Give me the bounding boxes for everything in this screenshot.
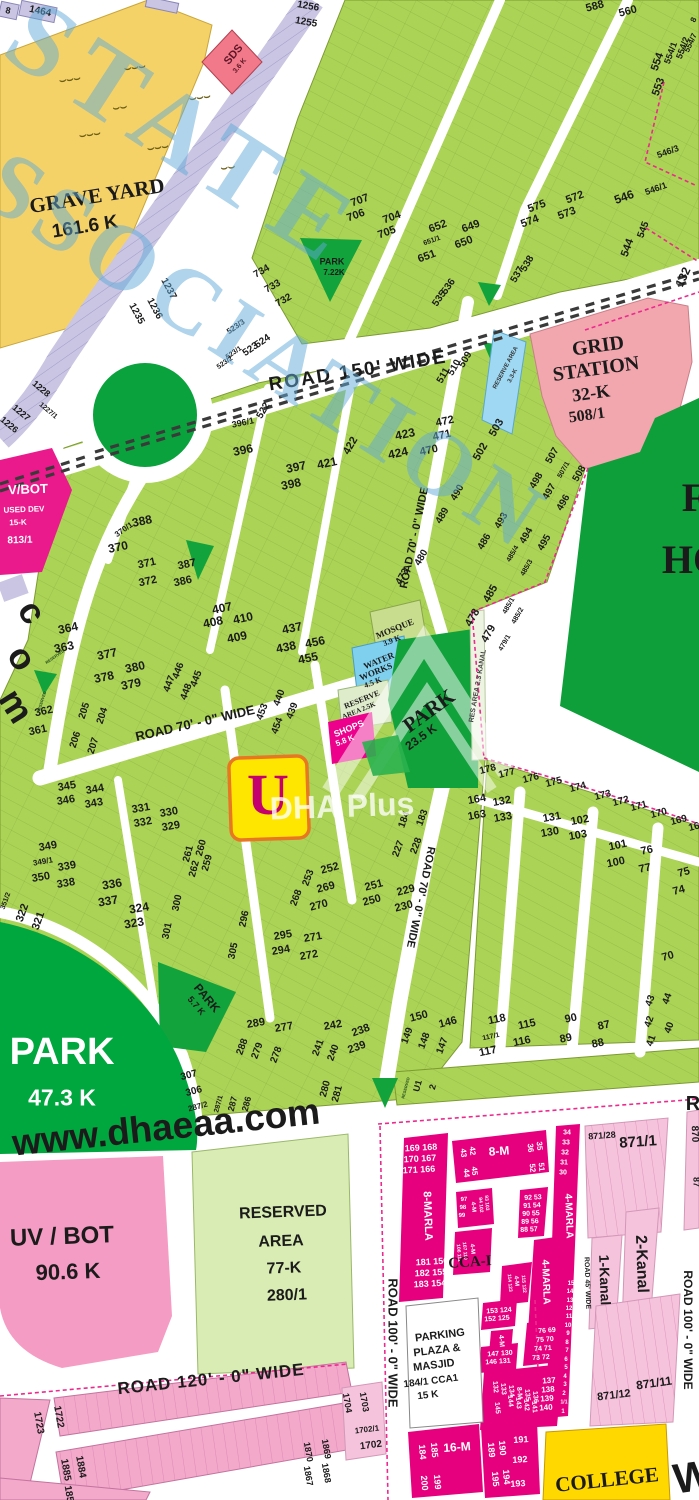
map-label: 242 bbox=[323, 1019, 343, 1033]
map-label: 7 bbox=[565, 1348, 568, 1354]
map-label: 90.6 K bbox=[35, 1260, 101, 1284]
map-label: 6 bbox=[564, 1357, 567, 1363]
map-label: 4 bbox=[563, 1374, 566, 1380]
map-label: 1226 bbox=[0, 415, 20, 435]
map-label: 5 bbox=[564, 1365, 567, 1371]
map-label: 4-MARLA bbox=[539, 1259, 551, 1304]
map-label: 114 123 bbox=[506, 1274, 513, 1292]
map-label: 279 bbox=[250, 1041, 265, 1060]
map-label: 397 bbox=[285, 459, 307, 475]
map-label: 10 bbox=[565, 1323, 572, 1329]
map-label: o bbox=[1, 639, 43, 677]
map-label: 241 bbox=[311, 1038, 326, 1057]
map-label: 280/1 bbox=[267, 1287, 308, 1304]
map-label: 652 bbox=[427, 219, 448, 236]
map-label: 70 bbox=[661, 950, 676, 964]
map-label: 130 bbox=[540, 826, 560, 840]
map-label: 649 bbox=[460, 219, 481, 236]
map-label: 205 bbox=[78, 702, 93, 721]
map-label: 149 bbox=[400, 1026, 415, 1045]
map-label: 1867 bbox=[302, 1465, 314, 1486]
map-label: 507/1 bbox=[557, 461, 572, 480]
map-label: 295 bbox=[273, 929, 293, 943]
map-label: 574 bbox=[519, 214, 540, 231]
map-label: 164 bbox=[467, 793, 487, 807]
map-label: 184/1 CCA1 bbox=[403, 1374, 459, 1391]
map-label: 183 bbox=[415, 808, 430, 827]
map-label: 507 bbox=[544, 446, 561, 465]
map-label: 77 bbox=[638, 862, 652, 875]
map-label: 102 bbox=[570, 814, 590, 828]
map-label: W bbox=[670, 1453, 699, 1500]
map-label: 207 bbox=[87, 737, 102, 756]
map-label: 537 bbox=[509, 265, 526, 284]
map-label: 289 bbox=[246, 1017, 266, 1031]
map-label: 1703 bbox=[358, 1391, 370, 1412]
map-label: 148 bbox=[417, 1031, 432, 1050]
map-label: 453 bbox=[255, 702, 270, 721]
map-label: 181 156 bbox=[416, 1257, 449, 1268]
map-label: 1868 bbox=[320, 1462, 332, 1483]
map-label: 330 bbox=[159, 806, 179, 820]
map-label: 31 bbox=[560, 1160, 568, 1167]
map-label: 103 bbox=[568, 829, 588, 843]
map-label: UV / BOT bbox=[10, 1223, 115, 1251]
map-label: 89 56 bbox=[521, 1218, 539, 1226]
road-70-label-lower: ROAD 70' - 0" WIDE bbox=[404, 845, 436, 948]
map-label: 508 bbox=[571, 464, 588, 483]
map-label: 43 bbox=[459, 1148, 468, 1158]
map-label: 380 bbox=[124, 659, 146, 675]
map-label: 132 bbox=[492, 795, 512, 809]
map-label: 454 bbox=[270, 716, 285, 735]
map-label: 8 bbox=[565, 1340, 568, 1346]
map-label: 42 bbox=[468, 1146, 477, 1156]
map-label: 336 bbox=[101, 876, 123, 891]
map-label: 3.3-K bbox=[507, 368, 519, 384]
map-label: 251 bbox=[364, 878, 385, 893]
map-label: 2-Kanal bbox=[632, 1235, 650, 1293]
map-canvas: 8146412561255SDS3.6 KGRAVE YARD161.6 K⌣⌣… bbox=[0, 0, 699, 1500]
map-label: 456 bbox=[304, 634, 326, 650]
watermark-dha-plus: DHA Plus bbox=[269, 787, 415, 824]
map-label: 1723 bbox=[31, 1411, 45, 1435]
map-label: 93 103 bbox=[483, 1195, 489, 1211]
map-label: 15 K bbox=[417, 1390, 439, 1403]
map-label: 438 bbox=[275, 639, 297, 655]
map-label: MASJID bbox=[413, 1358, 456, 1374]
map-label: 41 bbox=[645, 1034, 658, 1048]
map-label: 1702 bbox=[359, 1440, 382, 1453]
map-label: 1722 bbox=[51, 1405, 65, 1429]
map-label: 4-MARLA bbox=[562, 1193, 574, 1238]
map-labels-layer: 8146412561255SDS3.6 KGRAVE YARD161.6 K⌣⌣… bbox=[0, 0, 699, 1500]
map-label: 485 bbox=[482, 583, 501, 604]
map-label: 370 bbox=[107, 539, 129, 555]
map-label: 182 155 bbox=[415, 1268, 448, 1279]
map-label: 364 bbox=[57, 620, 79, 636]
park-47-label: PARK bbox=[10, 1033, 115, 1071]
map-label: 813/1 bbox=[7, 536, 32, 547]
map-label: 535 bbox=[431, 289, 449, 308]
map-label: 554 bbox=[650, 51, 667, 72]
map-label: 11 bbox=[566, 1314, 572, 1320]
map-label: 396 bbox=[232, 442, 254, 458]
map-label: 301 bbox=[161, 922, 174, 940]
map-label: RESERVED bbox=[239, 1203, 327, 1222]
map-label: 588 bbox=[585, 0, 606, 15]
map-label: 140 bbox=[539, 1404, 553, 1413]
map-label: 195 bbox=[490, 1471, 500, 1487]
map-label: 206 bbox=[69, 731, 84, 750]
map-label: 183 154 bbox=[414, 1279, 447, 1290]
map-label: 177 bbox=[498, 767, 517, 781]
map-label: 190 bbox=[497, 1440, 507, 1456]
map-label: COLLEGE bbox=[554, 1464, 660, 1496]
map-label: 479/1 bbox=[498, 634, 513, 653]
map-label: 34 bbox=[563, 1130, 571, 1137]
map-label: 133 bbox=[499, 1383, 507, 1395]
map-label: 870 bbox=[689, 1125, 699, 1142]
map-label: 88 bbox=[591, 1037, 605, 1050]
map-label: 142 bbox=[522, 1399, 530, 1411]
map-label: 871/1 bbox=[619, 1133, 658, 1151]
map-label: 145 bbox=[493, 1402, 501, 1414]
map-label: 1255 bbox=[294, 16, 318, 30]
map-label: 259 bbox=[201, 854, 215, 873]
map-label: 175 bbox=[545, 776, 564, 790]
map-label: 184 bbox=[417, 1444, 427, 1460]
map-label: 117 bbox=[478, 1045, 498, 1059]
map-label: 42 bbox=[643, 1015, 656, 1029]
road-120-label: ROAD 120' - 0" WIDE bbox=[117, 1361, 306, 1398]
map-label: 332 bbox=[133, 816, 153, 830]
map-label: 1884 bbox=[73, 1455, 87, 1479]
map-label: 169 168 bbox=[405, 1143, 438, 1154]
map-label: 371 bbox=[137, 557, 157, 572]
map-label: 98 bbox=[460, 1205, 467, 1211]
map-label: 1 bbox=[561, 1409, 564, 1415]
map-label: 239 bbox=[346, 1040, 367, 1057]
map-label: 227 bbox=[391, 839, 406, 858]
map-label: 77-K bbox=[266, 1260, 301, 1277]
map-label: 87 bbox=[691, 1177, 699, 1187]
road-100-label-left: ROAD 100' - 0" WIDE bbox=[387, 1278, 400, 1407]
map-label: 306 bbox=[185, 1085, 204, 1099]
map-label: 252 bbox=[320, 861, 341, 876]
map-label: 174 bbox=[569, 781, 588, 795]
map-label: 91 54 bbox=[523, 1202, 541, 1210]
map-label: 296 bbox=[238, 910, 251, 928]
map-label: 337 bbox=[97, 893, 119, 908]
map-label: 545 bbox=[636, 220, 651, 239]
map-label: 372 bbox=[138, 575, 158, 590]
map-label: 8-MARLA bbox=[421, 1191, 434, 1241]
map-label: 33 bbox=[562, 1140, 570, 1147]
map-label: 115 bbox=[517, 1018, 537, 1032]
map-label: 75 bbox=[677, 866, 692, 880]
map-label: 52 bbox=[528, 1163, 537, 1173]
map-label: 2 bbox=[428, 1083, 438, 1090]
map-label: 76 69 bbox=[538, 1327, 556, 1335]
map-label: 1256 bbox=[296, 0, 320, 14]
map-label: 331 bbox=[131, 802, 151, 816]
map-label: 4-M bbox=[497, 1335, 505, 1348]
map-label: 546/1 bbox=[644, 181, 668, 197]
map-label: 189 bbox=[486, 1442, 496, 1458]
map-label: 485/1 bbox=[502, 597, 517, 616]
map-label: 171 166 bbox=[403, 1165, 436, 1176]
map-label: 479 bbox=[480, 623, 499, 644]
map-label: 191 bbox=[513, 1435, 529, 1445]
map-label: 74 71 bbox=[534, 1345, 552, 1353]
map-label: 147 bbox=[435, 1036, 450, 1055]
map-label: 575 bbox=[526, 199, 547, 216]
map-label: 3 bbox=[563, 1382, 566, 1388]
map-label: USED DEV bbox=[3, 505, 44, 514]
map-label: 90 bbox=[564, 1012, 578, 1025]
map-label: 116 bbox=[512, 1035, 532, 1049]
map-label: 32 bbox=[561, 1150, 569, 1157]
map-label: 1870 bbox=[302, 1441, 314, 1462]
map-label: 871/12 bbox=[597, 1388, 632, 1403]
map-label: 572 bbox=[564, 190, 585, 207]
map-label: 115 122 bbox=[520, 1275, 527, 1293]
map-label: 294 bbox=[271, 944, 291, 958]
map-label: 495 bbox=[536, 533, 553, 552]
map-label: 1702/1 bbox=[354, 1425, 379, 1436]
map-label: 871/28 bbox=[588, 1131, 616, 1142]
map-label: 146 131 bbox=[485, 1358, 511, 1367]
map-label: 546/3 bbox=[656, 144, 680, 160]
map-label: 132 bbox=[673, 265, 692, 288]
map-label: 100 bbox=[606, 856, 626, 871]
map-label: 307 bbox=[180, 1069, 199, 1083]
map-label: RES AREA 2.3 KANAL bbox=[468, 649, 488, 723]
map-label: 199 bbox=[432, 1474, 442, 1490]
map-label: 101 bbox=[608, 839, 628, 854]
map-label: 553 bbox=[651, 76, 668, 97]
map-label: 14 bbox=[567, 1289, 574, 1295]
map-label: 379 bbox=[120, 676, 142, 692]
map-label: m bbox=[0, 683, 40, 729]
map-label: STATION bbox=[552, 353, 641, 385]
map-label: 1-Kanal bbox=[597, 1254, 613, 1305]
map-label: 204 bbox=[96, 707, 111, 726]
map-label: 345 bbox=[57, 780, 77, 794]
map-label: 47.3 K bbox=[28, 1087, 96, 1110]
map-label: 228 bbox=[409, 836, 424, 855]
map-label: 281 bbox=[331, 1085, 345, 1104]
map-label: 377 bbox=[96, 646, 118, 662]
map-label: 193 bbox=[510, 1479, 526, 1489]
map-label: U1 bbox=[412, 1079, 424, 1092]
map-label: AREA bbox=[258, 1233, 304, 1251]
map-label: 250 bbox=[362, 893, 383, 908]
map-label: 1885 bbox=[58, 1458, 72, 1482]
map-label: 346 bbox=[56, 794, 76, 808]
map-label: 409 bbox=[226, 629, 248, 645]
map-label: 705 bbox=[376, 225, 397, 242]
map-label: 13 bbox=[567, 1298, 574, 1304]
map-label: 408 bbox=[202, 614, 224, 630]
map-label: 253 bbox=[301, 868, 316, 887]
map-label: 324 bbox=[128, 900, 150, 915]
map-label: 478 bbox=[464, 607, 483, 628]
map-label: 305 bbox=[227, 942, 240, 960]
map-label: 73 72 bbox=[532, 1354, 550, 1362]
map-label: 132 bbox=[491, 1381, 499, 1393]
map-label: 322 bbox=[15, 902, 32, 923]
map-label: 440 bbox=[272, 688, 287, 707]
map-label: 485/3 bbox=[520, 559, 535, 578]
map-label: 445 bbox=[189, 669, 204, 688]
map-label: V/BOT bbox=[8, 482, 48, 496]
map-label: 9 bbox=[566, 1331, 569, 1337]
map-label: 16-M bbox=[443, 1440, 471, 1454]
map-label: 544 bbox=[620, 237, 637, 258]
map-label: 410 bbox=[232, 610, 254, 626]
map-label: 437 bbox=[281, 620, 303, 636]
map-label: 1704 bbox=[341, 1392, 353, 1413]
map-label: 141 bbox=[530, 1401, 538, 1413]
map-label: 650 bbox=[453, 235, 474, 252]
map-label: HO bbox=[662, 540, 699, 580]
map-label: 508/1 bbox=[568, 406, 606, 427]
map-label: 734 bbox=[252, 263, 271, 280]
map-label: 651/1 bbox=[423, 235, 442, 248]
map-label: 87 bbox=[597, 1019, 611, 1032]
map-label: 1227/1 bbox=[38, 401, 59, 420]
map-label: 99 bbox=[459, 1213, 466, 1219]
map-label: 170 bbox=[650, 807, 669, 821]
map-label: 270 bbox=[309, 898, 330, 913]
map-label: 12 bbox=[566, 1306, 573, 1312]
map-label: 170 167 bbox=[404, 1154, 437, 1165]
map-label: 240 bbox=[326, 1043, 341, 1062]
map-label: 8 bbox=[689, 16, 698, 23]
map-label: RESERVED bbox=[401, 1077, 411, 1099]
map-label: 4-M bbox=[469, 1244, 476, 1255]
map-label: 350 bbox=[31, 871, 51, 885]
map-label: 35 bbox=[535, 1141, 544, 1151]
map-label: 344 bbox=[85, 783, 105, 797]
map-label: 171 bbox=[630, 800, 649, 814]
map-label: 349 bbox=[38, 840, 58, 854]
map-label: 871/11 bbox=[635, 1375, 672, 1392]
map-label: 271 bbox=[303, 931, 323, 945]
map-label: 300 bbox=[171, 894, 184, 912]
map-label: 387 bbox=[177, 558, 197, 573]
map-label: 455 bbox=[297, 650, 319, 666]
map-label: 2 bbox=[562, 1391, 565, 1397]
map-label: 288 bbox=[235, 1037, 250, 1056]
map-label: 349/1 bbox=[32, 856, 53, 867]
map-label: 169 bbox=[670, 814, 689, 828]
map-label: 76 bbox=[640, 844, 654, 857]
map-label: 1869 bbox=[320, 1438, 332, 1459]
map-label: 15 bbox=[568, 1281, 575, 1287]
map-label: 651 bbox=[416, 249, 437, 266]
map-label: 338 bbox=[56, 877, 76, 891]
map-label: 131 bbox=[542, 811, 562, 825]
road-45-label: ROAD 45' WIDE bbox=[583, 1257, 592, 1309]
map-label: 92 53 bbox=[524, 1194, 542, 1202]
map-label: 89 bbox=[559, 1032, 573, 1045]
road-70-label-mid: ROAD 70' - 0" WIDE bbox=[134, 703, 256, 743]
map-label: 1227 bbox=[10, 403, 31, 423]
map-label: 323 bbox=[123, 915, 145, 930]
map-label: 185 bbox=[429, 1442, 439, 1458]
map-label: 446 bbox=[171, 661, 186, 680]
map-label: 4-M bbox=[513, 1276, 520, 1287]
map-label: 546 bbox=[613, 188, 636, 206]
map-label: 200 bbox=[419, 1475, 429, 1491]
map-label: 32-K bbox=[571, 381, 611, 404]
map-label: 268 bbox=[289, 888, 304, 907]
map-label: 386 bbox=[173, 575, 193, 590]
map-label: 15-K bbox=[9, 519, 27, 528]
map-label: 146 bbox=[438, 1015, 459, 1030]
map-label: 43 bbox=[644, 994, 657, 1008]
map-label: 8-M bbox=[488, 1144, 509, 1157]
map-label: 97 bbox=[461, 1197, 468, 1203]
map-label: 176 bbox=[522, 772, 541, 786]
map-label: 173 bbox=[594, 789, 613, 803]
map-label: 343 bbox=[84, 797, 104, 811]
map-label: 339 bbox=[57, 860, 77, 874]
map-label: 4-M bbox=[470, 1202, 477, 1213]
map-label: 269 bbox=[316, 880, 337, 895]
map-label: 143 bbox=[514, 1397, 522, 1409]
map-label: 278 bbox=[269, 1045, 284, 1064]
map-label: 40 bbox=[663, 1021, 676, 1035]
map-label: 118 bbox=[487, 1013, 507, 1027]
map-label: 192 bbox=[512, 1455, 528, 1465]
map-label: 36 bbox=[526, 1143, 535, 1153]
map-label: R bbox=[686, 1094, 699, 1114]
map-label: 378 bbox=[93, 669, 115, 685]
map-label: CCA-I bbox=[448, 1254, 492, 1272]
map-label: 421 bbox=[316, 455, 338, 471]
map-label: 361 bbox=[28, 724, 48, 739]
map-label: 45 bbox=[470, 1166, 479, 1176]
map-label: 229 bbox=[396, 883, 417, 898]
map-label: 396/1 bbox=[231, 416, 255, 429]
map-label: 1228 bbox=[30, 379, 51, 399]
road-100-label-right: ROAD 100' - 0" WIDE bbox=[682, 1270, 694, 1389]
map-label: 573 bbox=[556, 206, 577, 223]
map-label: c bbox=[11, 594, 52, 630]
map-label: 150 bbox=[409, 1009, 430, 1024]
map-label: 321 bbox=[31, 910, 48, 931]
map-label: 51 bbox=[537, 1162, 546, 1172]
map-label: 44 bbox=[661, 992, 674, 1006]
map-label: 117/1 bbox=[482, 1032, 500, 1042]
map-label: 163 bbox=[467, 809, 487, 823]
map-label: 560 bbox=[618, 4, 639, 19]
map-label: 178 bbox=[479, 763, 498, 777]
map-label: 370/1 bbox=[114, 521, 135, 539]
map-label: 152 125 bbox=[484, 1315, 510, 1324]
map-label: 144 bbox=[506, 1395, 514, 1407]
map-label: 485/2 bbox=[511, 607, 526, 626]
map-label: 30 bbox=[559, 1170, 567, 1177]
map-label: F bbox=[682, 478, 699, 518]
map-label: 277 bbox=[274, 1021, 294, 1035]
map-label: 272 bbox=[299, 949, 319, 963]
map-label: 1/1 bbox=[561, 1401, 568, 1406]
